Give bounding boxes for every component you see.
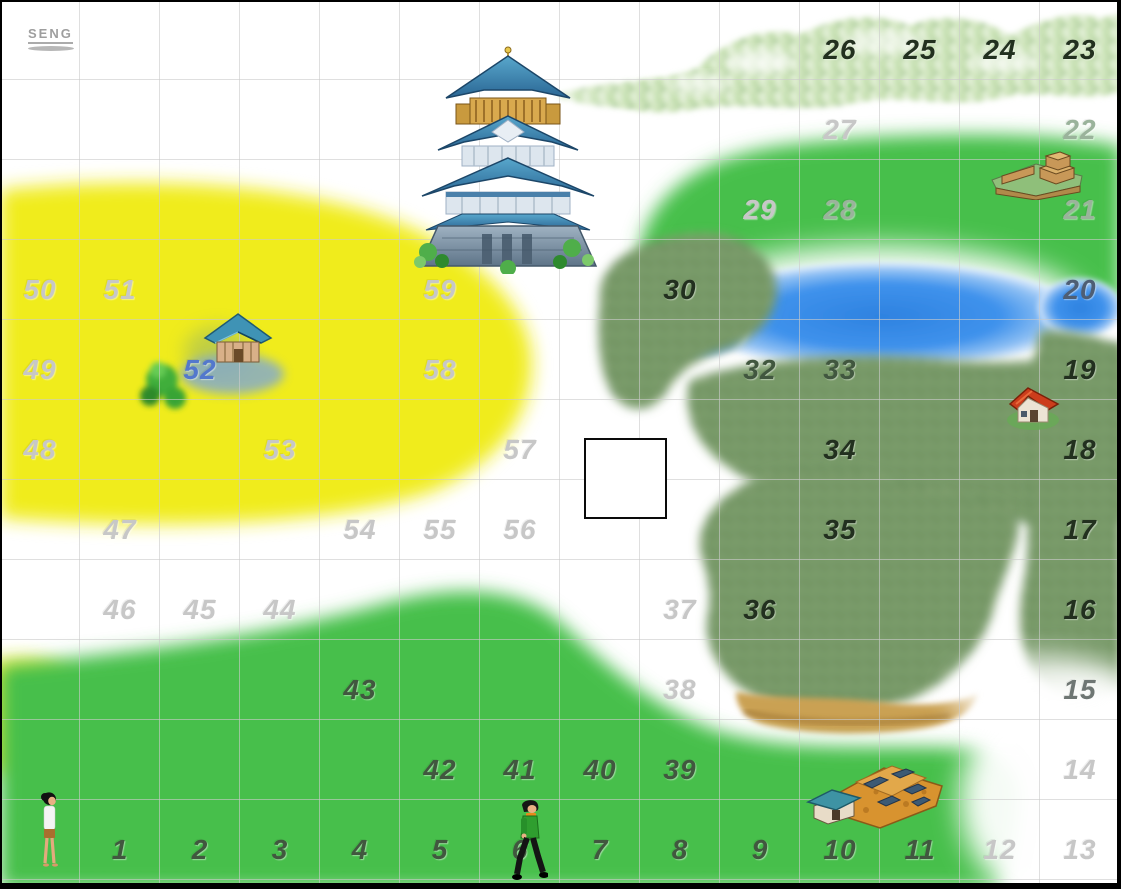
cell-41[interactable]: 41 (480, 754, 560, 786)
cell-38[interactable]: 38 (640, 674, 720, 706)
cell-46[interactable]: 46 (80, 594, 160, 626)
cell-16[interactable]: 16 (1040, 594, 1120, 626)
cell-9[interactable]: 9 (720, 834, 800, 866)
cell-24[interactable]: 24 (960, 34, 1040, 66)
cell-20[interactable]: 20 (1040, 274, 1120, 306)
cell-33[interactable]: 33 (800, 354, 880, 386)
logo-swoosh (28, 46, 74, 51)
cell-28[interactable]: 28 (800, 194, 880, 226)
cell-10[interactable]: 10 (800, 834, 880, 866)
cell-13[interactable]: 13 (1040, 834, 1120, 866)
cell-40[interactable]: 40 (560, 754, 640, 786)
cell-42[interactable]: 42 (400, 754, 480, 786)
cell-45[interactable]: 45 (160, 594, 240, 626)
cell-36[interactable]: 36 (720, 594, 800, 626)
cell-1[interactable]: 1 (80, 834, 160, 866)
cell-51[interactable]: 51 (80, 274, 160, 306)
cell-18[interactable]: 18 (1040, 434, 1120, 466)
cell-56[interactable]: 56 (480, 514, 560, 546)
cell-11[interactable]: 11 (880, 834, 960, 866)
cell-3[interactable]: 3 (240, 834, 320, 866)
cell-17[interactable]: 17 (1040, 514, 1120, 546)
logo: SENG (28, 26, 74, 51)
cell-29[interactable]: 29 (720, 194, 800, 226)
cell-48[interactable]: 48 (0, 434, 80, 466)
logo-text: SENG (28, 26, 73, 44)
cell-49[interactable]: 49 (0, 354, 80, 386)
cell-34[interactable]: 34 (800, 434, 880, 466)
cell-26[interactable]: 26 (800, 34, 880, 66)
cell-2[interactable]: 2 (160, 834, 240, 866)
cell-7[interactable]: 7 (560, 834, 640, 866)
cell-35[interactable]: 35 (800, 514, 880, 546)
cell-57[interactable]: 57 (480, 434, 560, 466)
cell-8[interactable]: 8 (640, 834, 720, 866)
female-character[interactable] (34, 791, 64, 869)
construction-site[interactable] (796, 742, 946, 836)
red-house[interactable] (1006, 380, 1060, 430)
cell-15[interactable]: 15 (1040, 674, 1120, 706)
cell-30[interactable]: 30 (640, 274, 720, 306)
cell-12[interactable]: 12 (960, 834, 1040, 866)
cell-39[interactable]: 39 (640, 754, 720, 786)
cell-47[interactable]: 47 (80, 514, 160, 546)
selection-box[interactable] (584, 438, 667, 519)
cell-4[interactable]: 4 (320, 834, 400, 866)
cell-54[interactable]: 54 (320, 514, 400, 546)
cell-37[interactable]: 37 (640, 594, 720, 626)
cell-14[interactable]: 14 (1040, 754, 1120, 786)
cell-32[interactable]: 32 (720, 354, 800, 386)
estate-house[interactable] (203, 312, 273, 370)
game-map: 2625242327222928215051593020495258323319… (0, 0, 1121, 889)
cell-55[interactable]: 55 (400, 514, 480, 546)
main-castle[interactable] (412, 46, 604, 274)
cell-22[interactable]: 22 (1040, 114, 1120, 146)
cell-43[interactable]: 43 (320, 674, 400, 706)
male-character[interactable] (510, 798, 548, 882)
cell-50[interactable]: 50 (0, 274, 80, 306)
cell-59[interactable]: 59 (400, 274, 480, 306)
cell-5[interactable]: 5 (400, 834, 480, 866)
cell-25[interactable]: 25 (880, 34, 960, 66)
cell-58[interactable]: 58 (400, 354, 480, 386)
hill-fort[interactable] (984, 144, 1090, 200)
cell-27[interactable]: 27 (800, 114, 880, 146)
cell-23[interactable]: 23 (1040, 34, 1120, 66)
cell-53[interactable]: 53 (240, 434, 320, 466)
cell-44[interactable]: 44 (240, 594, 320, 626)
